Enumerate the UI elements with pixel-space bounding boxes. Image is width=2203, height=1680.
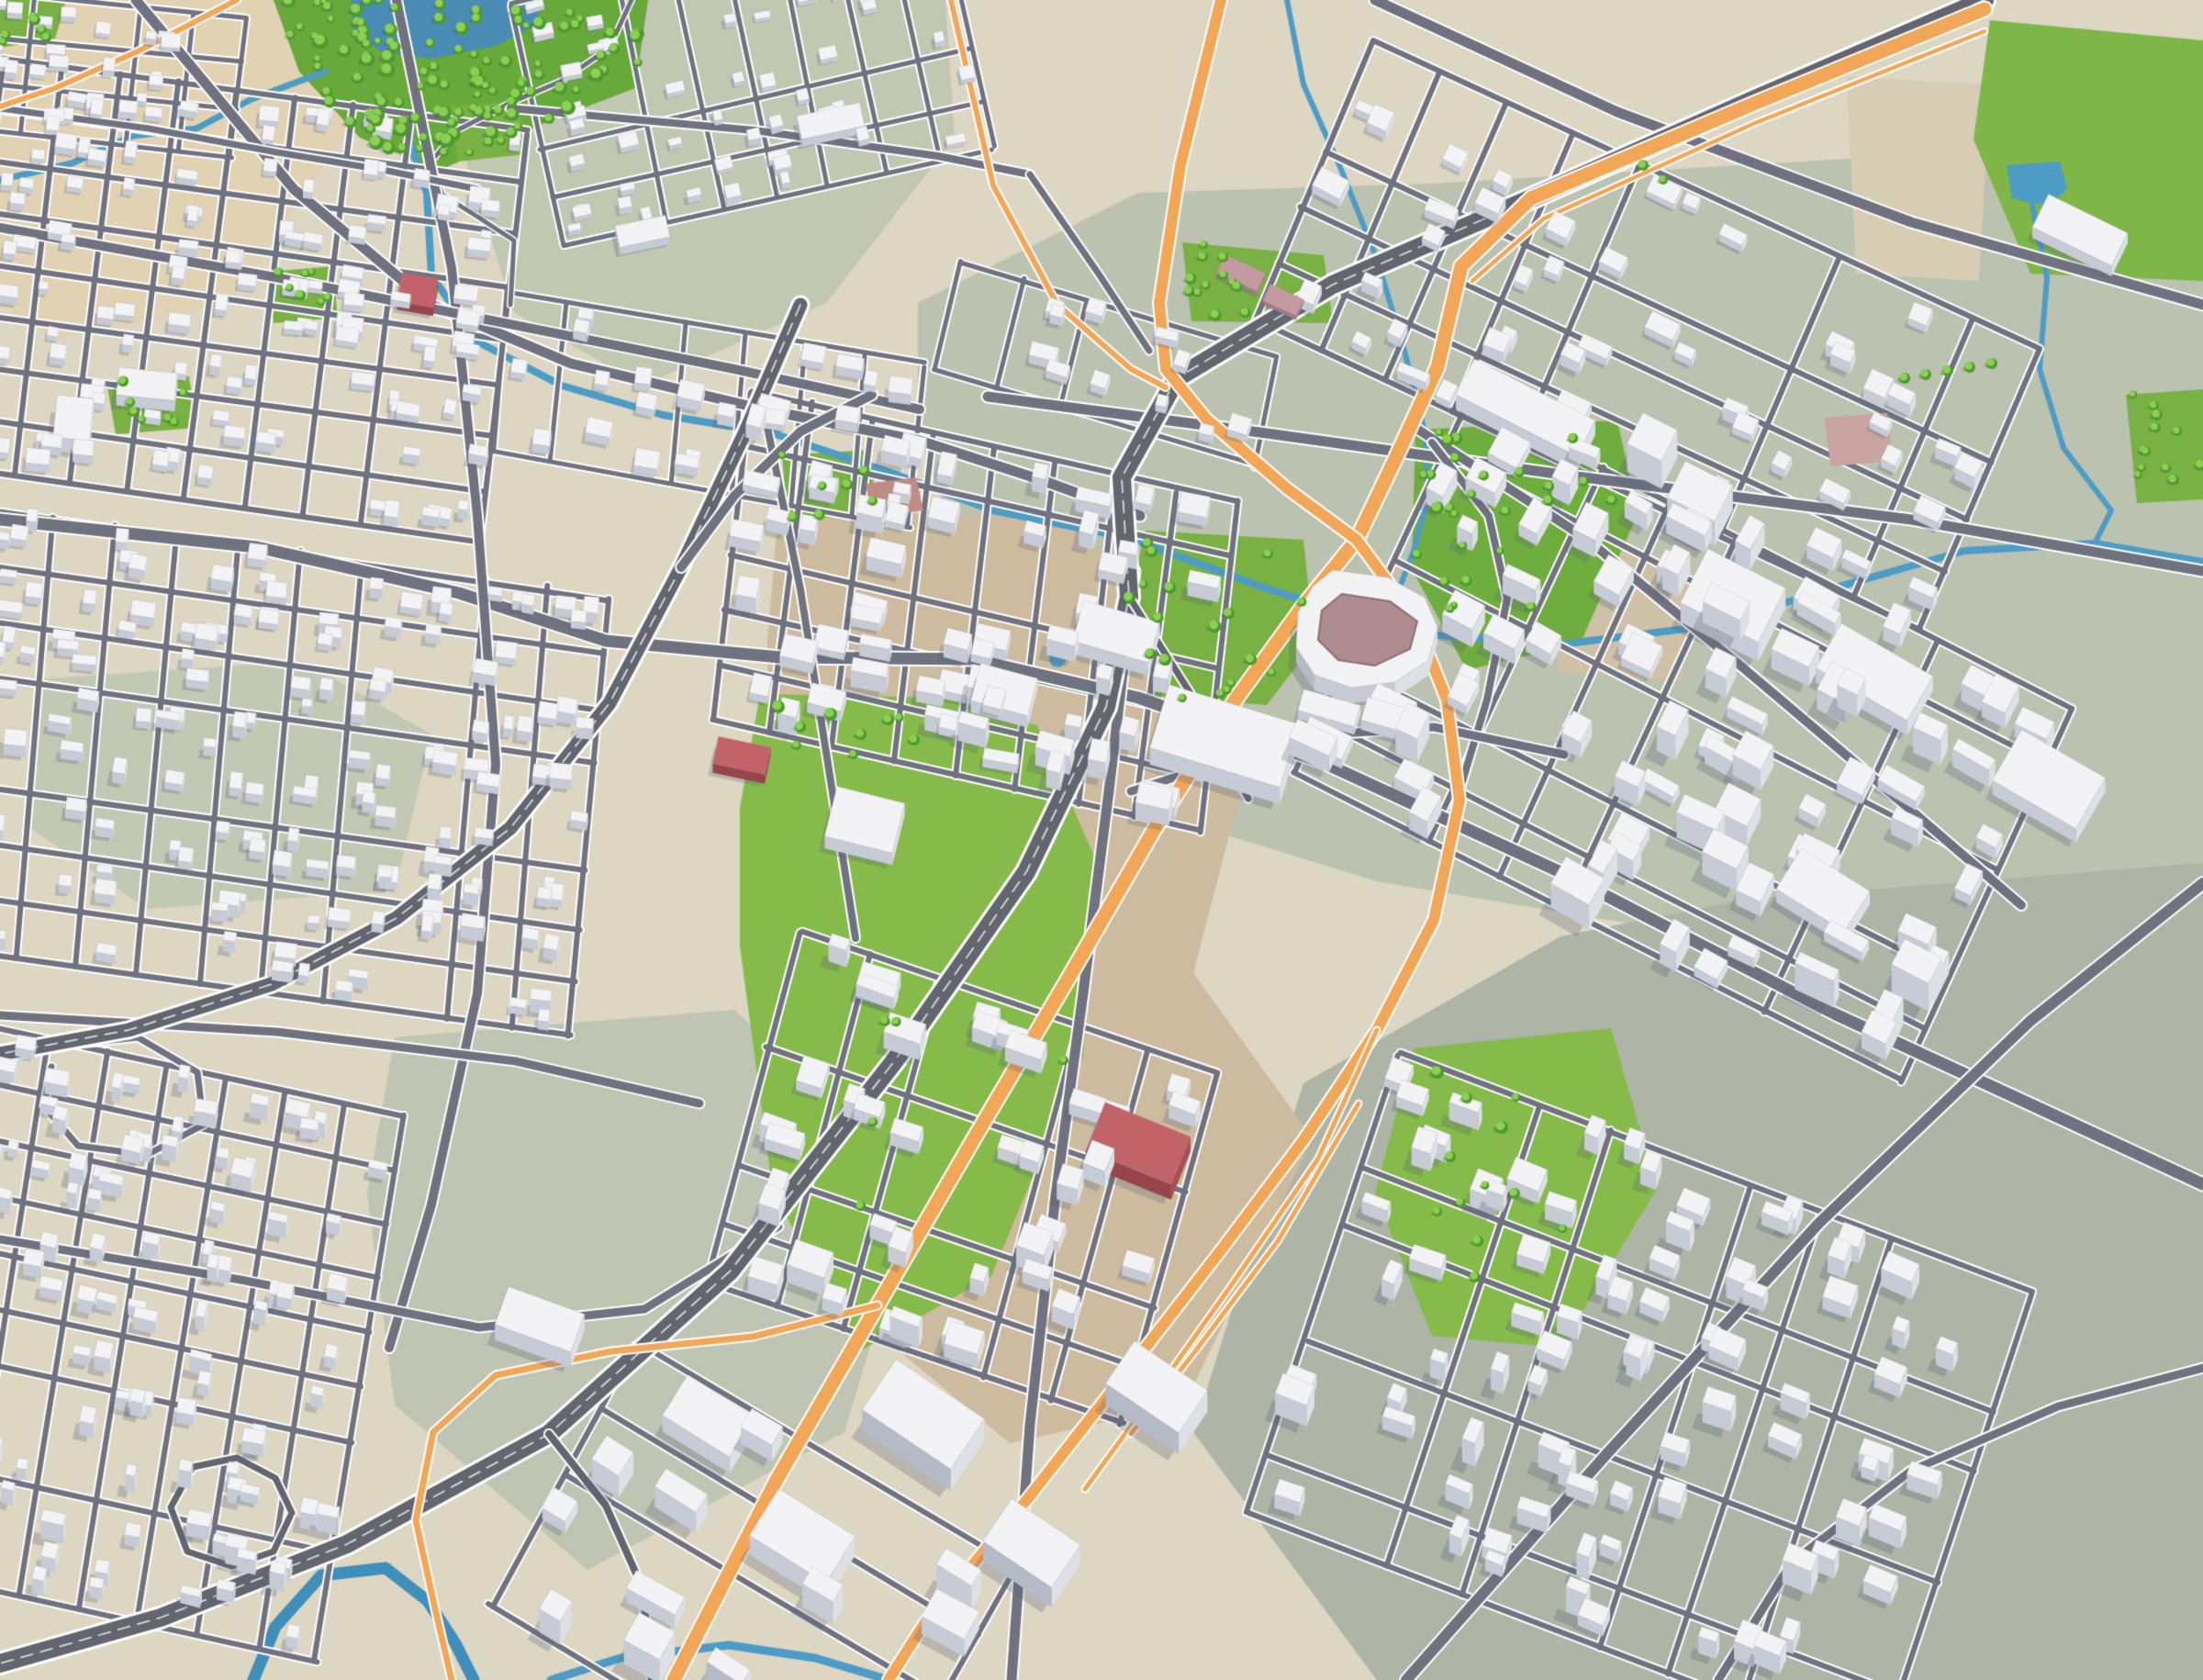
city-map-canvas [0, 0, 2203, 1680]
city-map-render [0, 0, 2203, 1680]
